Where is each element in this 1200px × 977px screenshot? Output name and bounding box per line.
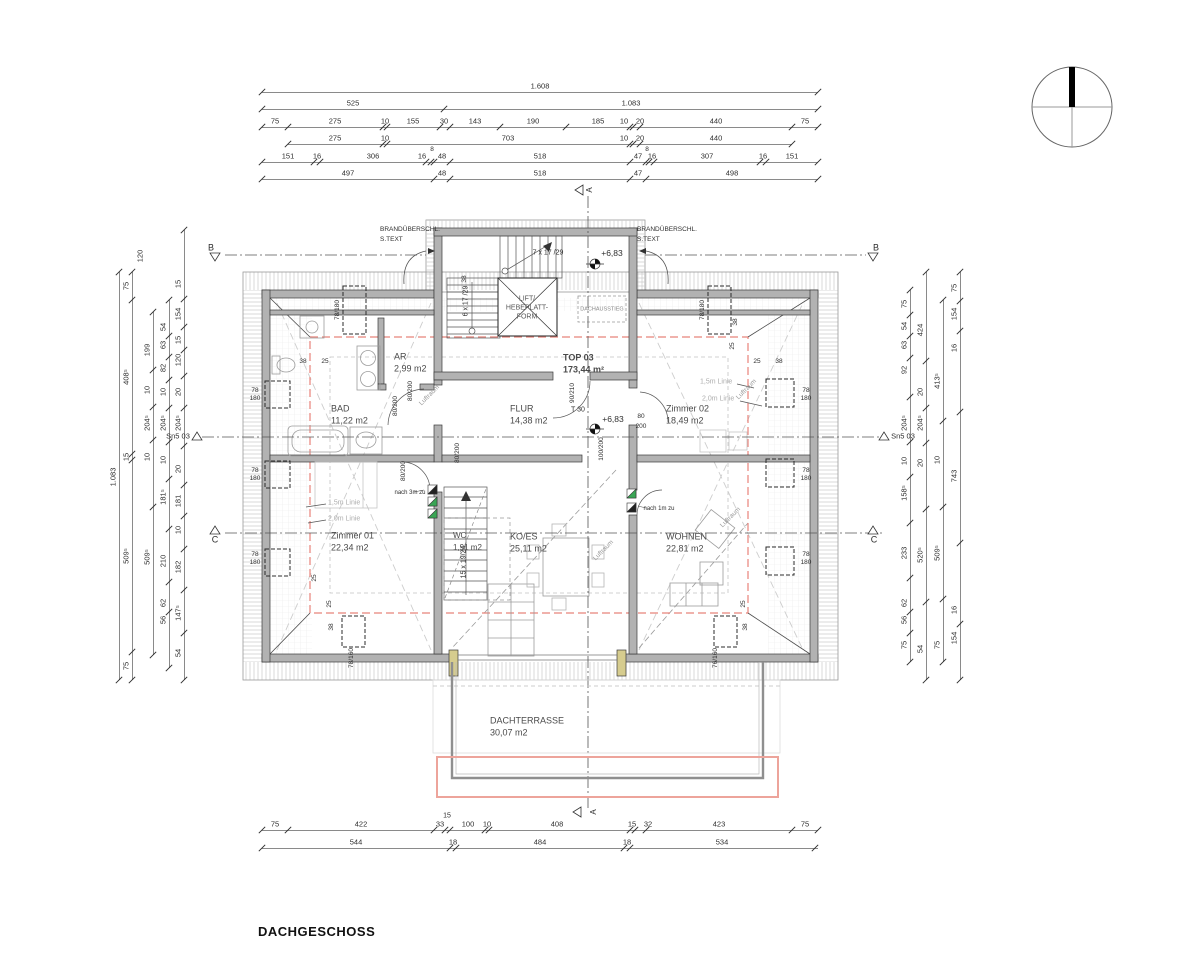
dimension-label: 204⁵ (900, 415, 908, 431)
dimension-label: 307 (701, 152, 714, 160)
dimension-label: 75 (271, 820, 279, 828)
dimension-label: C (871, 536, 878, 545)
room-label-zimmer-01: Zimmer 01 (331, 532, 374, 541)
dimension-label: 78 (251, 552, 258, 559)
dimension-label: Luftraum (593, 540, 616, 563)
dimension-label: 518 (534, 152, 547, 160)
room-area-top-03: 173,44 m² (563, 365, 604, 374)
annotation-layer: 1.6085251.083752751015530143190185102044… (0, 0, 1200, 977)
room-area-zimmer-01: 22,34 m2 (331, 543, 369, 552)
dimension-label: 78 (251, 468, 258, 475)
dimension-label: B (873, 244, 879, 253)
dimension-label: 743 (950, 470, 958, 483)
dimension-label: 10 (159, 388, 167, 396)
dimension-label: 10 (620, 117, 628, 125)
dimension-label: 75 (801, 117, 809, 125)
dimension-line (943, 300, 944, 662)
dimension-line (960, 272, 961, 680)
room-area-wc: 1,91 m2 (453, 544, 482, 552)
dimension-label: 15 (443, 813, 451, 820)
dimension-label: 54 (900, 322, 908, 330)
dimension-label: C (212, 536, 219, 545)
dimension-label: 1.083 (622, 99, 641, 107)
dimension-label: 25 (321, 359, 328, 366)
room-area-ar: 2,99 m2 (394, 364, 427, 373)
dimension-label: 204⁵ (174, 415, 182, 431)
dimension-label: 525 (347, 99, 360, 107)
dimension-label: 180 (250, 560, 261, 567)
dimension-label: 100 (462, 820, 475, 828)
dimension-tick (939, 658, 946, 665)
dimension-label: 154 (174, 308, 182, 321)
dimension-label: Luftraum (419, 385, 442, 408)
dimension-label: 15 (628, 820, 636, 828)
room-area-bad: 11,22 m2 (331, 416, 368, 425)
dimension-label: 413⁵ (933, 373, 941, 389)
dimension-tick (165, 664, 172, 671)
dimension-label: 76/160 (713, 648, 720, 668)
dimension-label: A (590, 809, 598, 814)
dimension-tick (115, 676, 122, 683)
dimension-label: 48 (438, 152, 446, 160)
dimension-label: 10 (620, 134, 628, 142)
dimension-tick (814, 175, 821, 182)
room-area-wohnen: 22,81 m2 (666, 544, 704, 553)
dimension-label: FORM (517, 314, 538, 321)
dimension-line (262, 830, 818, 831)
room-label-bad: BAD (331, 405, 350, 414)
dimension-line (119, 272, 120, 680)
dimension-tick (814, 158, 821, 165)
room-label-flur: FLUR (510, 405, 534, 414)
dimension-label: 80/200 (401, 461, 408, 481)
dimension-label: 90/210 (570, 383, 577, 403)
room-label-dachterrasse: DACHTERRASSE (490, 717, 564, 726)
dimension-label: 20 (174, 465, 182, 473)
dimension-label: 38 (462, 275, 469, 282)
dimension-label: Luftraum (736, 379, 759, 402)
dimension-label: 154 (950, 308, 958, 321)
dimension-label: 38 (733, 318, 740, 325)
dimension-label: 509⁵ (122, 548, 130, 564)
room-area-ko-es: 25,11 m2 (510, 544, 547, 553)
dimension-label: 158⁵ (900, 485, 908, 501)
dimension-label: 181 (174, 495, 182, 508)
dimension-label: 1.608 (531, 82, 550, 90)
dimension-label: 18 (623, 838, 631, 846)
dimension-label: 38 (775, 359, 782, 366)
dimension-label: 16 (950, 344, 958, 352)
dimension-line (926, 272, 927, 680)
dimension-label: 78 (802, 468, 809, 475)
dimension-tick (180, 676, 187, 683)
dimension-label: A (586, 187, 594, 192)
dimension-label: 10 (143, 386, 151, 394)
dimension-label: 63 (900, 341, 908, 349)
dimension-label: 509⁵ (143, 549, 151, 565)
dimension-label: 155 (407, 117, 420, 125)
dimension-label: 20 (636, 134, 644, 142)
dimension-label: 190 (527, 117, 540, 125)
dimension-label: 180 (801, 396, 812, 403)
dimension-label: Sn5 03 (891, 432, 915, 440)
dimension-label: 82 (159, 364, 167, 372)
dimension-label: 20 (636, 117, 644, 125)
room-label-ar: AR (394, 353, 407, 362)
dimension-label: 204⁵ (916, 415, 924, 431)
dimension-label: B (208, 244, 214, 253)
dimension-label: 10 (381, 117, 389, 125)
dimension-label: 75 (271, 117, 279, 125)
dimension-label: 10 (174, 526, 182, 534)
dimension-line (262, 162, 818, 163)
dimension-label: 210 (159, 555, 167, 568)
dimension-label: 2,0m Linie (702, 396, 734, 403)
dimension-label: 484 (534, 838, 547, 846)
dimension-label: 20 (174, 388, 182, 396)
dimension-label: 54 (159, 323, 167, 331)
dimension-label: 38 (329, 623, 336, 630)
dimension-label: 15 (174, 280, 182, 288)
dimension-label: 25 (753, 359, 760, 366)
dimension-label: S.TEXT (637, 237, 660, 244)
dimension-label: 78 (802, 552, 809, 559)
dimension-line (262, 109, 818, 110)
dimension-line (132, 272, 133, 680)
dimension-tick (922, 676, 929, 683)
dimension-label: 518 (534, 169, 547, 177)
dimension-label: 25 (741, 600, 748, 607)
dimension-label: 100/200 (599, 437, 606, 461)
dimension-label: 80/200 (408, 381, 415, 401)
dimension-label: 75 (950, 284, 958, 292)
dimension-label: 78 (251, 388, 258, 395)
dimension-label: 440 (710, 117, 723, 125)
dimension-label: 1,5m Linie (700, 379, 732, 386)
dimension-label: 2,0m Linie (328, 516, 360, 523)
dimension-tick (814, 826, 821, 833)
dimension-label: nach 3m zu (394, 490, 425, 496)
dimension-label: 10 (933, 456, 941, 464)
dimension-tick (906, 658, 913, 665)
dimension-tick (814, 105, 821, 112)
room-area-flur: 14,38 m2 (510, 416, 548, 425)
dimension-label: Sn5 03 (166, 432, 190, 440)
dimension-label: 30 (440, 117, 448, 125)
room-label-wohnen: WOHNEN (666, 533, 707, 542)
room-label-top-03: TOP 03 (563, 354, 594, 363)
dimension-line (262, 92, 818, 93)
dimension-label: 54 (174, 649, 182, 657)
dimension-label: 1.083 (109, 468, 117, 487)
dimension-label: 151 (786, 152, 799, 160)
dimension-label: 509⁵ (933, 545, 941, 561)
dimension-label: 306 (367, 152, 380, 160)
dimension-tick (128, 676, 135, 683)
dimension-label: 80/200 (393, 396, 400, 416)
floorplan-sheet: 1.6085251.083752751015530143190185102044… (0, 0, 1200, 977)
dimension-label: 1,5m Linie (328, 500, 360, 507)
dimension-label: S.TEXT (380, 237, 403, 244)
dimension-label: 75 (900, 300, 908, 308)
dimension-tick (788, 140, 795, 147)
dimension-label: 181⁵ (159, 489, 167, 505)
dimension-label: 16 (648, 152, 656, 160)
dimension-label: 180 (250, 396, 261, 403)
dimension-label: 16 (950, 606, 958, 614)
dimension-label: 20 (916, 459, 924, 467)
dimension-label: 62 (900, 599, 908, 607)
dimension-label: 10 (143, 453, 151, 461)
dimension-label: 33 (436, 820, 444, 828)
dimension-label: 47 (634, 169, 642, 177)
dimension-label: 75 (900, 641, 908, 649)
dimension-label: 54 (916, 645, 924, 653)
dimension-label: 10 (159, 456, 167, 464)
dimension-label: 15 (122, 453, 130, 461)
dimension-label: 63 (159, 341, 167, 349)
dimension-label: 185 (592, 117, 605, 125)
dimension-label: 147⁵ (174, 605, 182, 621)
dimension-label: 48 (438, 169, 446, 177)
room-label-zimmer-02: Zimmer 02 (666, 405, 709, 414)
dimension-line (262, 179, 818, 180)
dimension-label: 18 (449, 838, 457, 846)
dimension-label: 75 (933, 641, 941, 649)
dimension-label: 120 (136, 250, 144, 263)
dimension-label: 180 (801, 560, 812, 567)
dimension-label: +6,83 (601, 249, 623, 258)
dimension-label: 78 (802, 388, 809, 395)
dimension-label: 703 (502, 134, 515, 142)
dimension-label: 424 (916, 324, 924, 337)
dimension-label: 6 x 17 /29 (463, 286, 470, 317)
dimension-label: 275 (329, 117, 342, 125)
dimension-label: 544 (350, 838, 363, 846)
dimension-label: 408 (551, 820, 564, 828)
dimension-label: 204⁵ (143, 415, 151, 431)
dimension-label: 32 (644, 820, 652, 828)
dimension-label: 143 (469, 117, 482, 125)
room-label-wc: WC (453, 532, 466, 540)
dimension-label: 38 (743, 623, 750, 630)
dimension-label: 25 (312, 574, 319, 581)
dimension-line (153, 312, 154, 655)
dimension-label: 75 (801, 820, 809, 828)
dimension-label: 408⁵ (122, 369, 130, 385)
dimension-label: 120 (174, 354, 182, 367)
dimension-tick (814, 88, 821, 95)
dimension-label: 275 (329, 134, 342, 142)
dimension-label: T 30 (571, 407, 585, 414)
dimension-label: nach 1m zu (643, 506, 674, 512)
dimension-label: 78/180 (700, 300, 707, 320)
dimension-label: 497 (342, 169, 355, 177)
dimension-label: LIFT/ (519, 296, 535, 303)
dimension-label: 16 (418, 152, 426, 160)
dimension-tick (149, 651, 156, 658)
dimension-label: 80 (637, 414, 644, 421)
dimension-label: 233 (900, 547, 908, 560)
dimension-label: 56 (900, 616, 908, 624)
dimension-label: 75 (122, 662, 130, 670)
dimension-label: 182 (174, 561, 182, 574)
dimension-label: 10 (900, 457, 908, 465)
dimension-label: 16 (313, 152, 321, 160)
dimension-label: 56 (159, 616, 167, 624)
dimension-label: 534 (716, 838, 729, 846)
dimension-label: 10 (483, 820, 491, 828)
dimension-label: 8 (645, 147, 649, 154)
dimension-label: 92 (900, 366, 908, 374)
dimension-label: BRANDÜBERSCHL. (380, 227, 440, 234)
dimension-label: 7 x 17 /29 (533, 250, 564, 257)
dimension-label: HEBEPLATT- (506, 305, 548, 312)
room-area-dachterrasse: 30,07 m2 (490, 728, 528, 737)
dimension-label: 10 (381, 134, 389, 142)
dimension-label: 62 (159, 599, 167, 607)
dimension-line (262, 127, 818, 128)
sheet-title: DACHGESCHOSS (258, 924, 375, 939)
dimension-label: Luftraum (720, 507, 743, 530)
dimension-label: DACHAUSSTIEG (580, 307, 623, 313)
room-area-zimmer-02: 18,49 m2 (666, 416, 704, 425)
dimension-label: 520⁵ (916, 547, 924, 563)
dimension-label: 38 (299, 359, 306, 366)
dimension-label: 423 (713, 820, 726, 828)
dimension-label: BRANDÜBERSCHL. (637, 227, 697, 234)
dimension-label: 25 (730, 342, 737, 349)
dimension-label: 78/180 (335, 300, 342, 320)
dimension-label: 199 (143, 344, 151, 357)
dimension-label: 154 (950, 632, 958, 645)
dimension-line (288, 144, 792, 145)
dimension-label: 200 (636, 424, 647, 431)
dimension-label: 25 (327, 600, 334, 607)
dimension-label: 180 (801, 476, 812, 483)
dimension-label: 15 (174, 336, 182, 344)
dimension-label: 498 (726, 169, 739, 177)
dimension-tick (814, 123, 821, 130)
dimension-label: 16 (759, 152, 767, 160)
dimension-label: 20 (916, 388, 924, 396)
dimension-label: 204⁵ (159, 415, 167, 431)
dimension-label: 440 (710, 134, 723, 142)
dimension-label: 75 (122, 282, 130, 290)
dimension-label: 78/160 (349, 648, 356, 668)
dimension-label: 47 (634, 152, 642, 160)
dimension-label: 422 (355, 820, 368, 828)
dimension-line (262, 848, 818, 849)
dimension-label: 180 (250, 476, 261, 483)
dimension-label: 8 (430, 147, 434, 154)
dimension-tick (956, 676, 963, 683)
dimension-label: +6,83 (602, 415, 624, 424)
dimension-label: 151 (282, 152, 295, 160)
dimension-label: 80/200 (455, 443, 462, 463)
room-label-ko-es: KO/ES (510, 533, 538, 542)
